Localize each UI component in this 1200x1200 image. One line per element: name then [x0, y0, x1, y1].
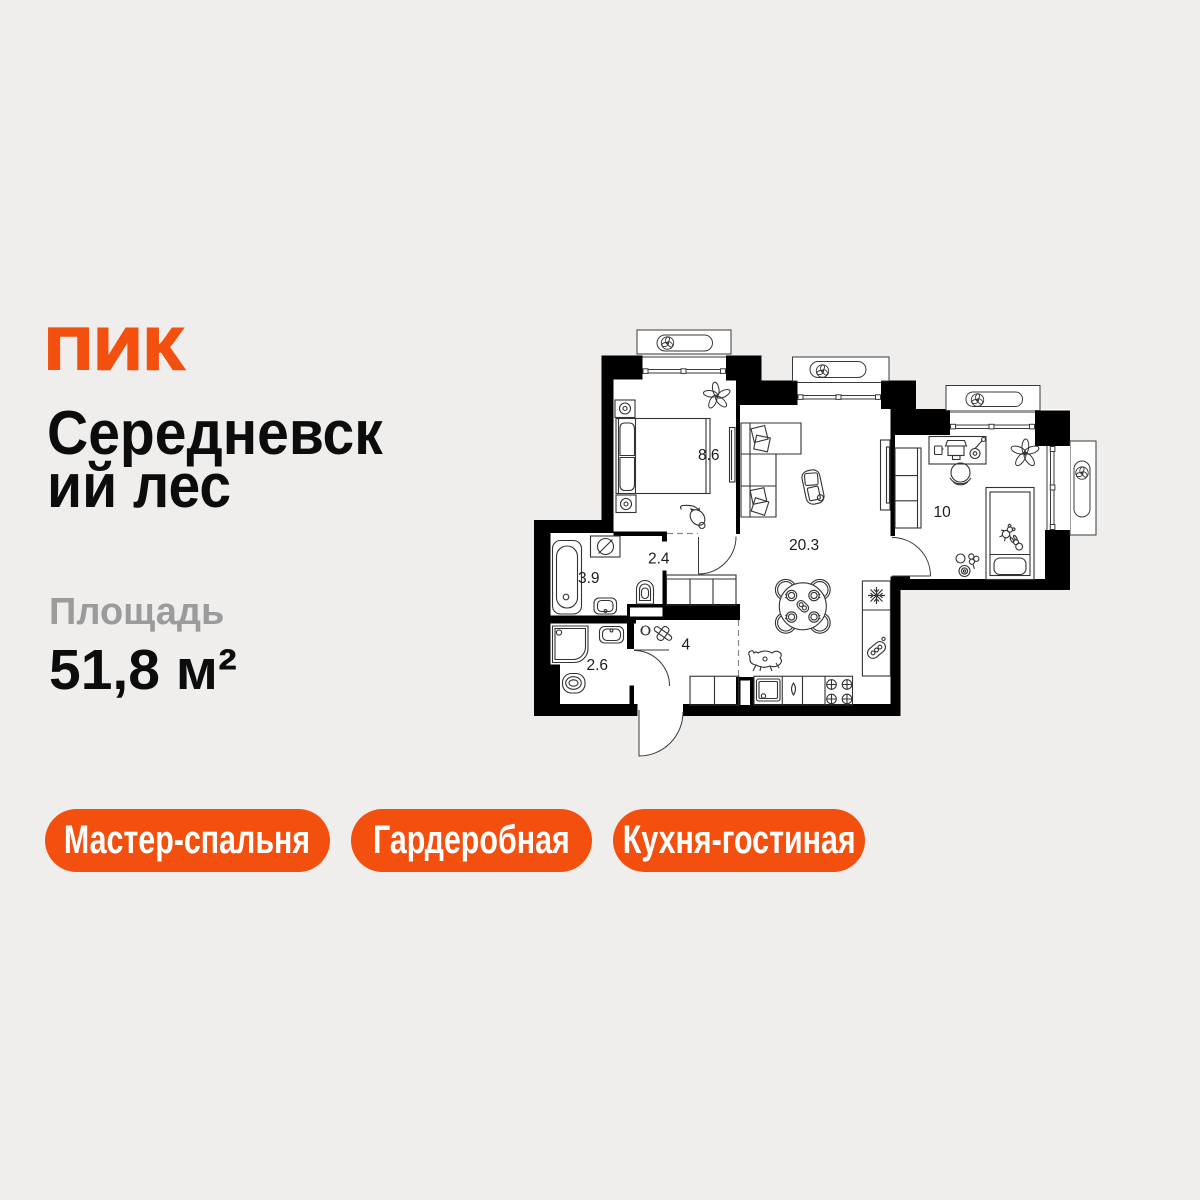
- svg-text:2.6: 2.6: [587, 657, 609, 674]
- svg-text:2.4: 2.4: [648, 551, 670, 568]
- svg-text:3.9: 3.9: [578, 570, 600, 587]
- svg-text:20.3: 20.3: [789, 537, 819, 554]
- svg-text:10: 10: [934, 504, 952, 521]
- svg-text:8.6: 8.6: [698, 447, 720, 464]
- svg-text:4: 4: [682, 637, 691, 654]
